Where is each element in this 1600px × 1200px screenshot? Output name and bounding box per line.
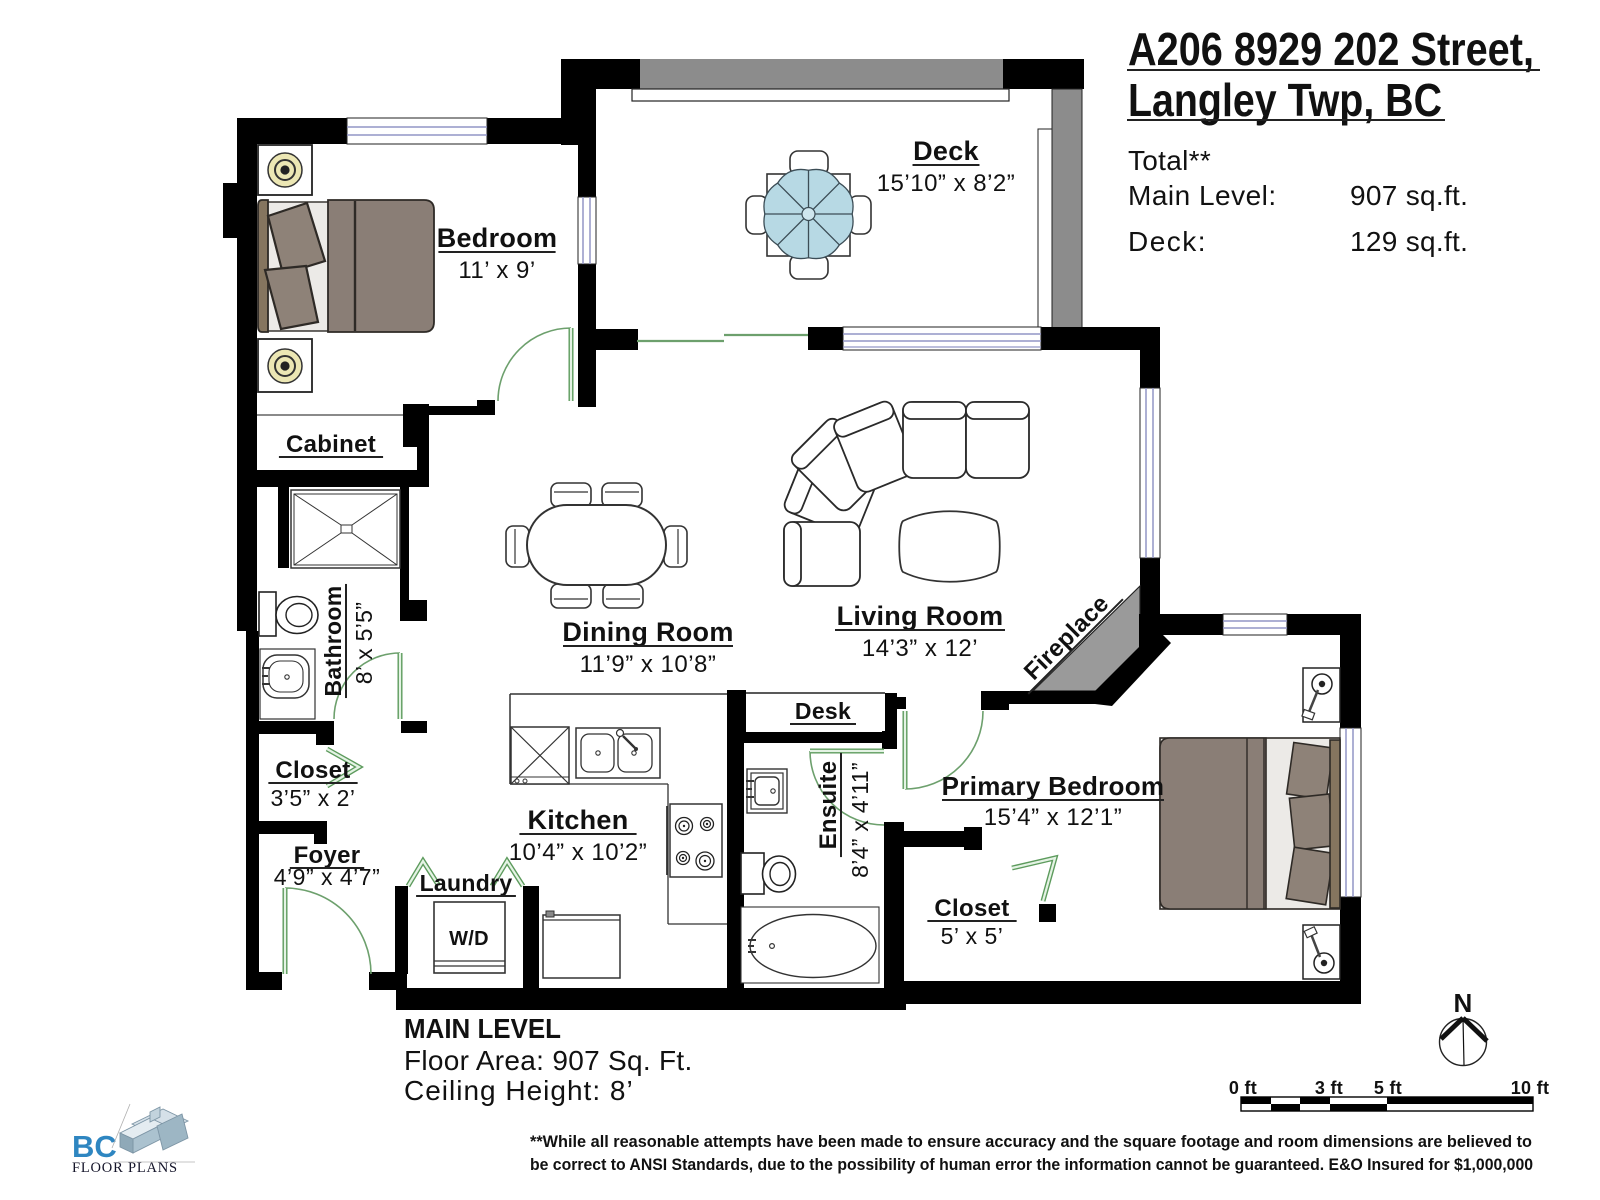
svg-text:129 sq.ft.: 129 sq.ft. bbox=[1350, 226, 1468, 257]
svg-text:10 ft: 10 ft bbox=[1511, 1078, 1550, 1098]
svg-text:Laundry: Laundry bbox=[420, 870, 513, 896]
svg-text:MAIN LEVEL: MAIN LEVEL bbox=[404, 1013, 561, 1044]
svg-text:Bathroom: Bathroom bbox=[320, 585, 346, 696]
svg-text:be correct to ANSI Standards,: be correct to ANSI Standards, due to the… bbox=[530, 1155, 1533, 1174]
svg-text:0 ft: 0 ft bbox=[1229, 1078, 1257, 1098]
svg-text:14’3” x 12’: 14’3” x 12’ bbox=[862, 635, 978, 662]
svg-text:11’ x 9’: 11’ x 9’ bbox=[458, 257, 535, 284]
svg-text:Cabinet: Cabinet bbox=[286, 431, 376, 458]
svg-text:11’9” x 10’8”: 11’9” x 10’8” bbox=[580, 651, 717, 678]
svg-text:907 sq.ft.: 907 sq.ft. bbox=[1350, 180, 1468, 211]
svg-text:4’9” x 4’7”: 4’9” x 4’7” bbox=[274, 864, 380, 890]
svg-text:Langley Twp, BC: Langley Twp, BC bbox=[1128, 74, 1442, 126]
svg-text:BC: BC bbox=[72, 1129, 117, 1164]
svg-text:FLOOR PLANS: FLOOR PLANS bbox=[72, 1160, 178, 1176]
svg-text:8’ x 5’5”: 8’ x 5’5” bbox=[351, 602, 377, 684]
svg-text:A206 8929 202 Street,: A206 8929 202 Street, bbox=[1128, 23, 1534, 75]
svg-text:Desk: Desk bbox=[795, 698, 851, 724]
svg-text:Dining Room: Dining Room bbox=[562, 617, 733, 647]
svg-text:5 ft: 5 ft bbox=[1374, 1078, 1402, 1098]
svg-text:Ensuite: Ensuite bbox=[815, 761, 842, 850]
svg-text:3 ft: 3 ft bbox=[1315, 1078, 1343, 1098]
svg-text:Main Level:: Main Level: bbox=[1128, 180, 1277, 211]
svg-text:Closet: Closet bbox=[275, 757, 350, 784]
svg-text:Kitchen: Kitchen bbox=[527, 805, 628, 835]
svg-text:Deck:: Deck: bbox=[1128, 226, 1207, 257]
svg-text:Bedroom: Bedroom bbox=[437, 223, 558, 253]
svg-text:Total**: Total** bbox=[1128, 145, 1211, 176]
svg-text:Primary Bedroom: Primary Bedroom bbox=[942, 771, 1165, 801]
svg-text:3’5” x 2’: 3’5” x 2’ bbox=[270, 785, 355, 811]
svg-text:15’10” x 8’2”: 15’10” x 8’2” bbox=[877, 170, 1016, 197]
svg-text:N: N bbox=[1453, 988, 1472, 1018]
svg-text:Ceiling Height: 8’: Ceiling Height: 8’ bbox=[404, 1075, 634, 1106]
svg-text:15’4” x 12’1”: 15’4” x 12’1” bbox=[984, 804, 1123, 831]
svg-text:Floor Area: 907 Sq. Ft.: Floor Area: 907 Sq. Ft. bbox=[404, 1045, 693, 1076]
svg-text:Closet: Closet bbox=[934, 895, 1009, 922]
svg-text:8’4” x 4’11”: 8’4” x 4’11” bbox=[847, 762, 873, 878]
svg-text:5’ x 5’: 5’ x 5’ bbox=[941, 923, 1004, 949]
svg-text:**While all reasonable attempt: **While all reasonable attempts have bee… bbox=[530, 1132, 1532, 1151]
svg-text:Deck: Deck bbox=[913, 136, 979, 166]
svg-text:10’4” x 10’2”: 10’4” x 10’2” bbox=[509, 839, 648, 866]
svg-text:Living Room: Living Room bbox=[837, 601, 1004, 631]
svg-text:W/D: W/D bbox=[449, 928, 489, 950]
